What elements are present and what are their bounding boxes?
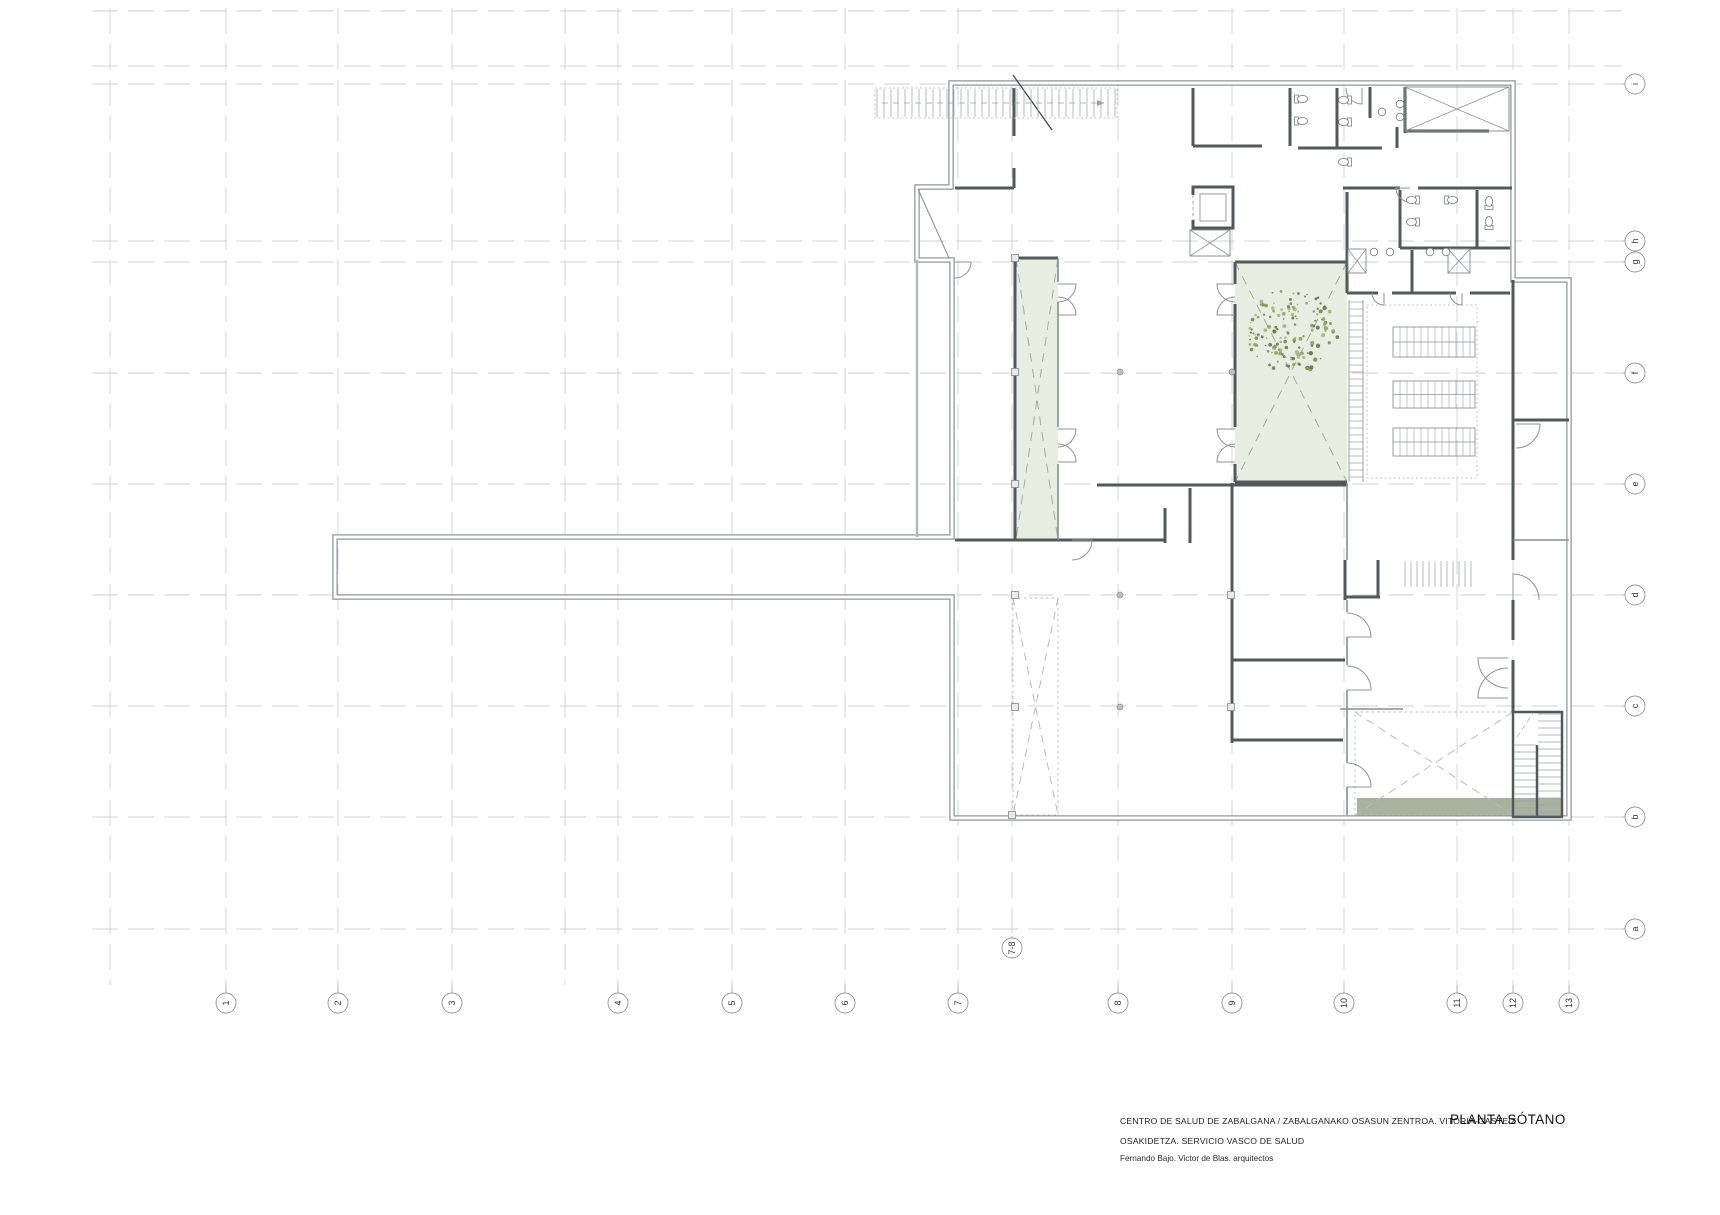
outer-walls [335,83,1569,818]
grid-bubble-col-13: 13 [1559,993,1579,1013]
shelving [1367,305,1477,478]
grid-bubble-row-g: g [1625,252,1645,272]
grid-bubble-col-1: 1 [216,993,236,1013]
svg-text:11: 11 [1452,998,1462,1007]
grid-bubble-col-5: 5 [722,993,742,1013]
svg-text:2: 2 [333,1000,343,1005]
wc-fixture [1485,217,1493,230]
courtyards [1016,258,1562,817]
grid-bubble-row-c: c [1625,696,1645,716]
grid-bubble-row-e: e [1625,474,1645,494]
svg-text:6: 6 [840,1000,850,1005]
svg-text:13: 13 [1564,998,1574,1008]
grid-bubble-col-8: 8 [1108,993,1128,1013]
grid-bubble-row-a: a [1625,919,1645,939]
grid-bubble-col-3: 3 [442,993,462,1013]
grid-bubble-row-f: f [1625,363,1645,383]
sink-fixture [1396,100,1404,108]
svg-text:4: 4 [613,1000,623,1005]
svg-text:d: d [1630,592,1640,597]
svg-text:h: h [1630,238,1640,243]
svg-text:9: 9 [1227,1000,1237,1005]
svg-text:e: e [1630,481,1640,486]
sink-fixture [1378,108,1386,116]
grid-bubble-col-11: 11 [1447,993,1467,1013]
wc-fixture [1295,95,1308,103]
wc-fixture [1445,196,1458,204]
wc-fixture [1407,196,1420,204]
stairs [875,88,1562,817]
svg-text:b: b [1630,814,1640,819]
grid-bubble-col-6: 6 [835,993,855,1013]
sink-fixture [1396,113,1404,121]
svg-text:12: 12 [1508,998,1518,1008]
svg-text:7-8: 7-8 [1007,941,1017,954]
grid-bubbles: 123456789101112137-8ihgfedcba [216,74,1645,1013]
svg-text:5: 5 [727,1000,737,1005]
svg-text:1: 1 [221,1000,231,1005]
drawing-sheet: 123456789101112137-8ihgfedcba CENTRO DE … [0,0,1720,1215]
svg-text:i: i [1630,83,1640,85]
svg-text:8: 8 [1113,1000,1123,1005]
grid-bubble-col-10: 10 [1334,993,1354,1013]
fixtures [1295,95,1494,256]
wc-fixture [1407,218,1420,226]
svg-text:a: a [1630,926,1640,931]
sink-fixture [1370,248,1378,256]
grid-bubble-col-7: 7 [948,993,968,1013]
svg-text:3: 3 [447,1000,457,1005]
sink-fixture [1426,248,1434,256]
wc-fixture [1295,117,1308,125]
grid-bubble-col-7-8: 7-8 [1002,938,1022,958]
elevator [1193,187,1233,228]
sink-fixture [1386,248,1394,256]
void-rooms [1013,598,1513,815]
grid-bubble-row-h: h [1625,231,1645,251]
sink-fixture [1442,248,1450,256]
wc-fixture [1339,118,1352,126]
svg-text:7: 7 [953,1000,963,1005]
grid-bubble-col-2: 2 [328,993,348,1013]
grid-bubble-col-4: 4 [608,993,628,1013]
grid-bubble-col-9: 9 [1222,993,1242,1013]
wc-fixture [1339,158,1352,166]
floor-plan-canvas: 123456789101112137-8ihgfedcba [0,0,1720,1215]
svg-text:g: g [1630,259,1640,264]
cross-boxes [1190,87,1509,273]
grid-bubble-row-b: b [1625,807,1645,827]
grid-layer [92,8,1622,985]
svg-text:c: c [1630,703,1640,708]
grid-bubble-row-i: i [1625,74,1645,94]
grid-bubble-row-d: d [1625,585,1645,605]
wc-fixture [1485,197,1493,210]
wc-fixture [1339,96,1352,104]
grid-bubble-col-12: 12 [1503,993,1523,1013]
svg-text:10: 10 [1339,998,1349,1008]
